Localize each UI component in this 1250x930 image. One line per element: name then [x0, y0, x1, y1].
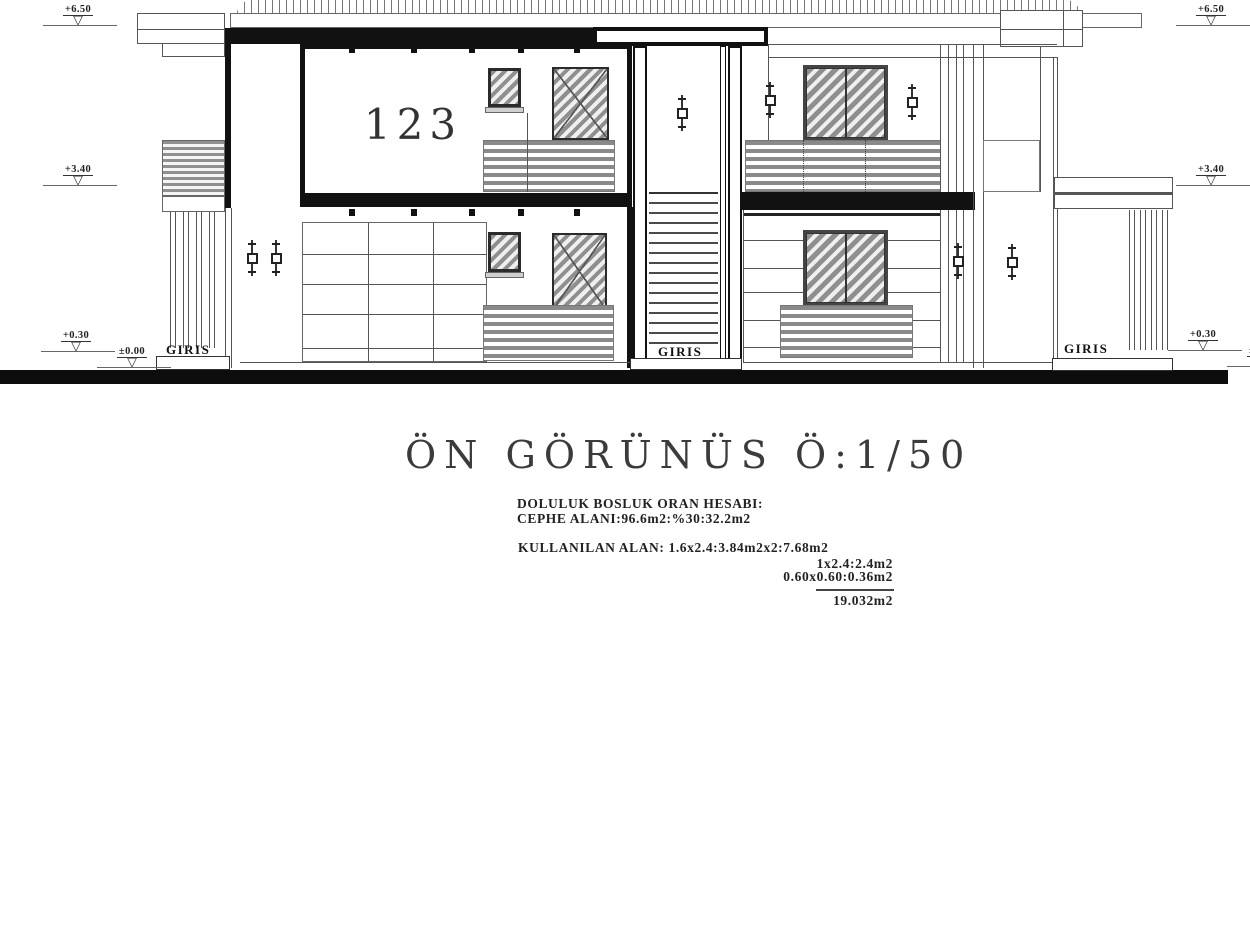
siding-line — [743, 213, 940, 216]
tick-mark — [349, 46, 355, 53]
grid-line — [303, 314, 486, 315]
wall-lamp-icon — [271, 240, 281, 276]
stair-tower-pillar — [633, 46, 647, 368]
ground-line — [0, 370, 1228, 384]
right-unit-top-line — [768, 44, 1057, 45]
left-wing-column — [170, 212, 176, 348]
wall-lamp-icon — [953, 243, 963, 279]
window-pane — [846, 68, 886, 138]
left-wing-column — [183, 212, 189, 348]
left-roof-canopy — [137, 13, 225, 44]
mullion-line — [948, 210, 949, 362]
base-line — [743, 362, 1053, 363]
stair-treads — [649, 192, 718, 352]
elevation-marker: +0.30 ▽ — [45, 330, 107, 352]
total-rule — [816, 589, 894, 591]
calc-total: 19.032m2 — [600, 593, 893, 609]
right-wing-column — [1129, 210, 1135, 350]
left-wing-louver — [162, 140, 225, 196]
left-wall-edge-lower — [225, 208, 232, 368]
mullion-line — [940, 210, 941, 362]
tick-mark — [574, 209, 580, 216]
tick-mark — [469, 46, 475, 53]
mullion-line — [527, 113, 528, 192]
wall-lamp-icon — [765, 82, 775, 118]
stair-tower-pillar — [728, 46, 742, 368]
right-wing-column — [1162, 210, 1168, 350]
drawing-title: ÖN GÖRÜNÜS Ö:1/50 — [405, 433, 905, 477]
slat-steps-right-lower — [780, 305, 913, 358]
wall-lamp-icon — [907, 84, 917, 120]
mullion-line — [940, 45, 941, 192]
canopy-divider — [1001, 29, 1082, 30]
recess-panel — [983, 140, 1040, 192]
elevation-marker: +0.30 ▽ — [1172, 329, 1234, 351]
elevation-marker: +3.40 ▽ — [47, 164, 109, 186]
stair-tower-pillar — [720, 46, 726, 368]
tick-mark — [518, 46, 524, 53]
right-wing-canopy — [1054, 177, 1173, 209]
tick-mark — [518, 209, 524, 216]
elevation-marker: ±0.00 ▽ — [101, 346, 163, 368]
balcony-railing-right-upper — [745, 140, 941, 192]
level-line — [1176, 25, 1250, 26]
small-window-upper — [488, 68, 521, 107]
large-window-upper — [552, 67, 609, 140]
calc-facade: CEPHE ALANI:96.6m2:%30:32.2m2 — [517, 511, 751, 527]
railing-post — [865, 140, 866, 192]
tick-mark — [469, 209, 475, 216]
window-pane — [806, 68, 846, 138]
tick-mark — [411, 209, 417, 216]
level-line — [97, 367, 171, 368]
wall-lamp-icon — [677, 95, 687, 131]
wall-line — [743, 210, 744, 362]
level-line — [43, 185, 117, 186]
canopy-divider — [138, 29, 224, 30]
double-window-upper — [803, 65, 888, 141]
window-sill — [485, 272, 524, 278]
right-entrance-label: GIRIS — [1064, 341, 1108, 357]
right-roof-canopy — [1000, 10, 1083, 47]
elevation-marker: ±0.00 ▽ — [1231, 345, 1250, 367]
window-sill — [485, 107, 524, 113]
grid-line — [368, 223, 369, 361]
stair-top-line — [649, 192, 718, 194]
left-wing-band — [162, 196, 225, 212]
left-entrance-label: GIRIS — [166, 342, 210, 358]
elevation-drawing-canvas: GIRIS 123 GIRIS — [0, 0, 1250, 930]
double-window-lower — [803, 230, 888, 306]
calc-row3: 0.60x0.60:0.36m2 — [600, 569, 893, 585]
elevation-marker: +6.50 ▽ — [47, 4, 109, 26]
left-wing-column — [209, 212, 215, 348]
slat-panel-left-lower — [483, 305, 614, 361]
grid-line — [303, 254, 486, 255]
window-pane — [846, 233, 886, 303]
tick-mark — [349, 209, 355, 216]
center-entrance-platform — [630, 358, 742, 370]
canopy-band — [1055, 192, 1172, 195]
wall-lamp-icon — [1007, 244, 1017, 280]
mullion-line — [963, 45, 964, 192]
room-number: 123 — [358, 100, 468, 149]
grid-line — [303, 348, 486, 349]
roof-tiles — [237, 0, 1080, 14]
wall-line — [983, 45, 984, 368]
right-wing-column — [1140, 210, 1146, 350]
elevation-marker: +3.40 ▽ — [1180, 164, 1242, 186]
tick-mark — [574, 46, 580, 53]
tick-mark — [411, 46, 417, 53]
mullion-line — [956, 210, 957, 362]
small-window-lower — [488, 232, 521, 272]
balcony-railing-left-upper — [483, 140, 615, 192]
elevation-marker: +6.50 ▽ — [1180, 4, 1242, 26]
wall-line — [973, 45, 974, 368]
canopy-divider — [1063, 11, 1064, 46]
right-entrance-platform — [1052, 358, 1173, 371]
large-window-lower — [552, 233, 607, 310]
left-roof-lip — [162, 43, 225, 57]
mullion-line — [956, 45, 957, 192]
wall-line — [1040, 47, 1041, 192]
level-line — [1227, 366, 1250, 367]
wall-lamp-icon — [247, 240, 257, 276]
level-line — [1176, 185, 1250, 186]
right-unit-floor-beam — [742, 192, 975, 210]
mullion-line — [948, 45, 949, 192]
cladding-grid — [302, 222, 487, 362]
window-pane — [806, 233, 846, 303]
left-wall-edge — [225, 28, 231, 208]
railing-post — [803, 140, 804, 192]
right-unit-top-line2 — [768, 57, 1057, 58]
calc-heading: DOLULUK BOSLUK ORAN HESABI: — [517, 496, 763, 512]
base-line — [240, 362, 630, 363]
grid-line — [303, 284, 486, 285]
mullion-line — [963, 210, 964, 362]
level-line — [43, 25, 117, 26]
left-wing-column — [196, 212, 202, 348]
calc-used-area: KULLANILAN ALAN: 1.6x2.4:3.84m2x2:7.68m2 — [518, 540, 829, 556]
grid-line — [433, 223, 434, 361]
right-wing-column — [1151, 210, 1157, 350]
